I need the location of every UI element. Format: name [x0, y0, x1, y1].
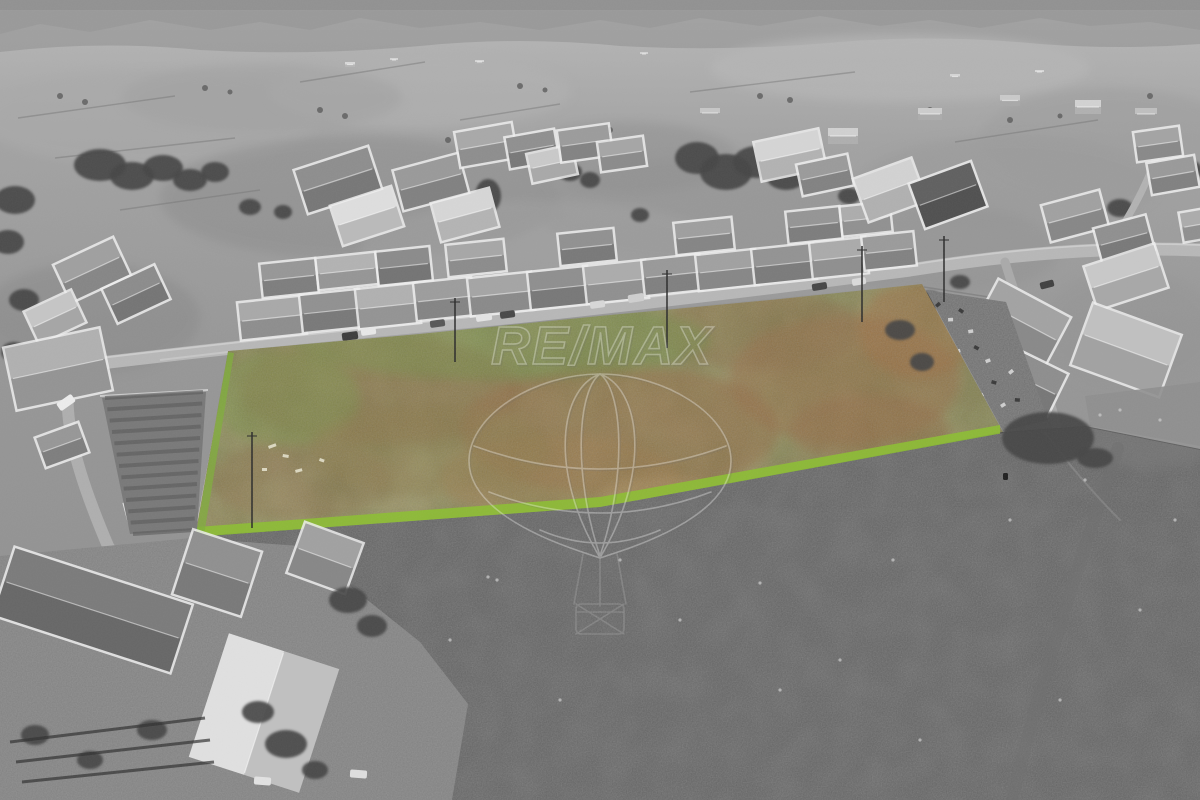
aerial-scene: RE/MAX RE/MAX — [0, 0, 1200, 800]
aerial-photo: RE/MAX RE/MAX — [0, 0, 1200, 800]
watermark-brand-text: RE/MAX — [491, 316, 714, 376]
film-grain-overlay — [0, 0, 1200, 800]
